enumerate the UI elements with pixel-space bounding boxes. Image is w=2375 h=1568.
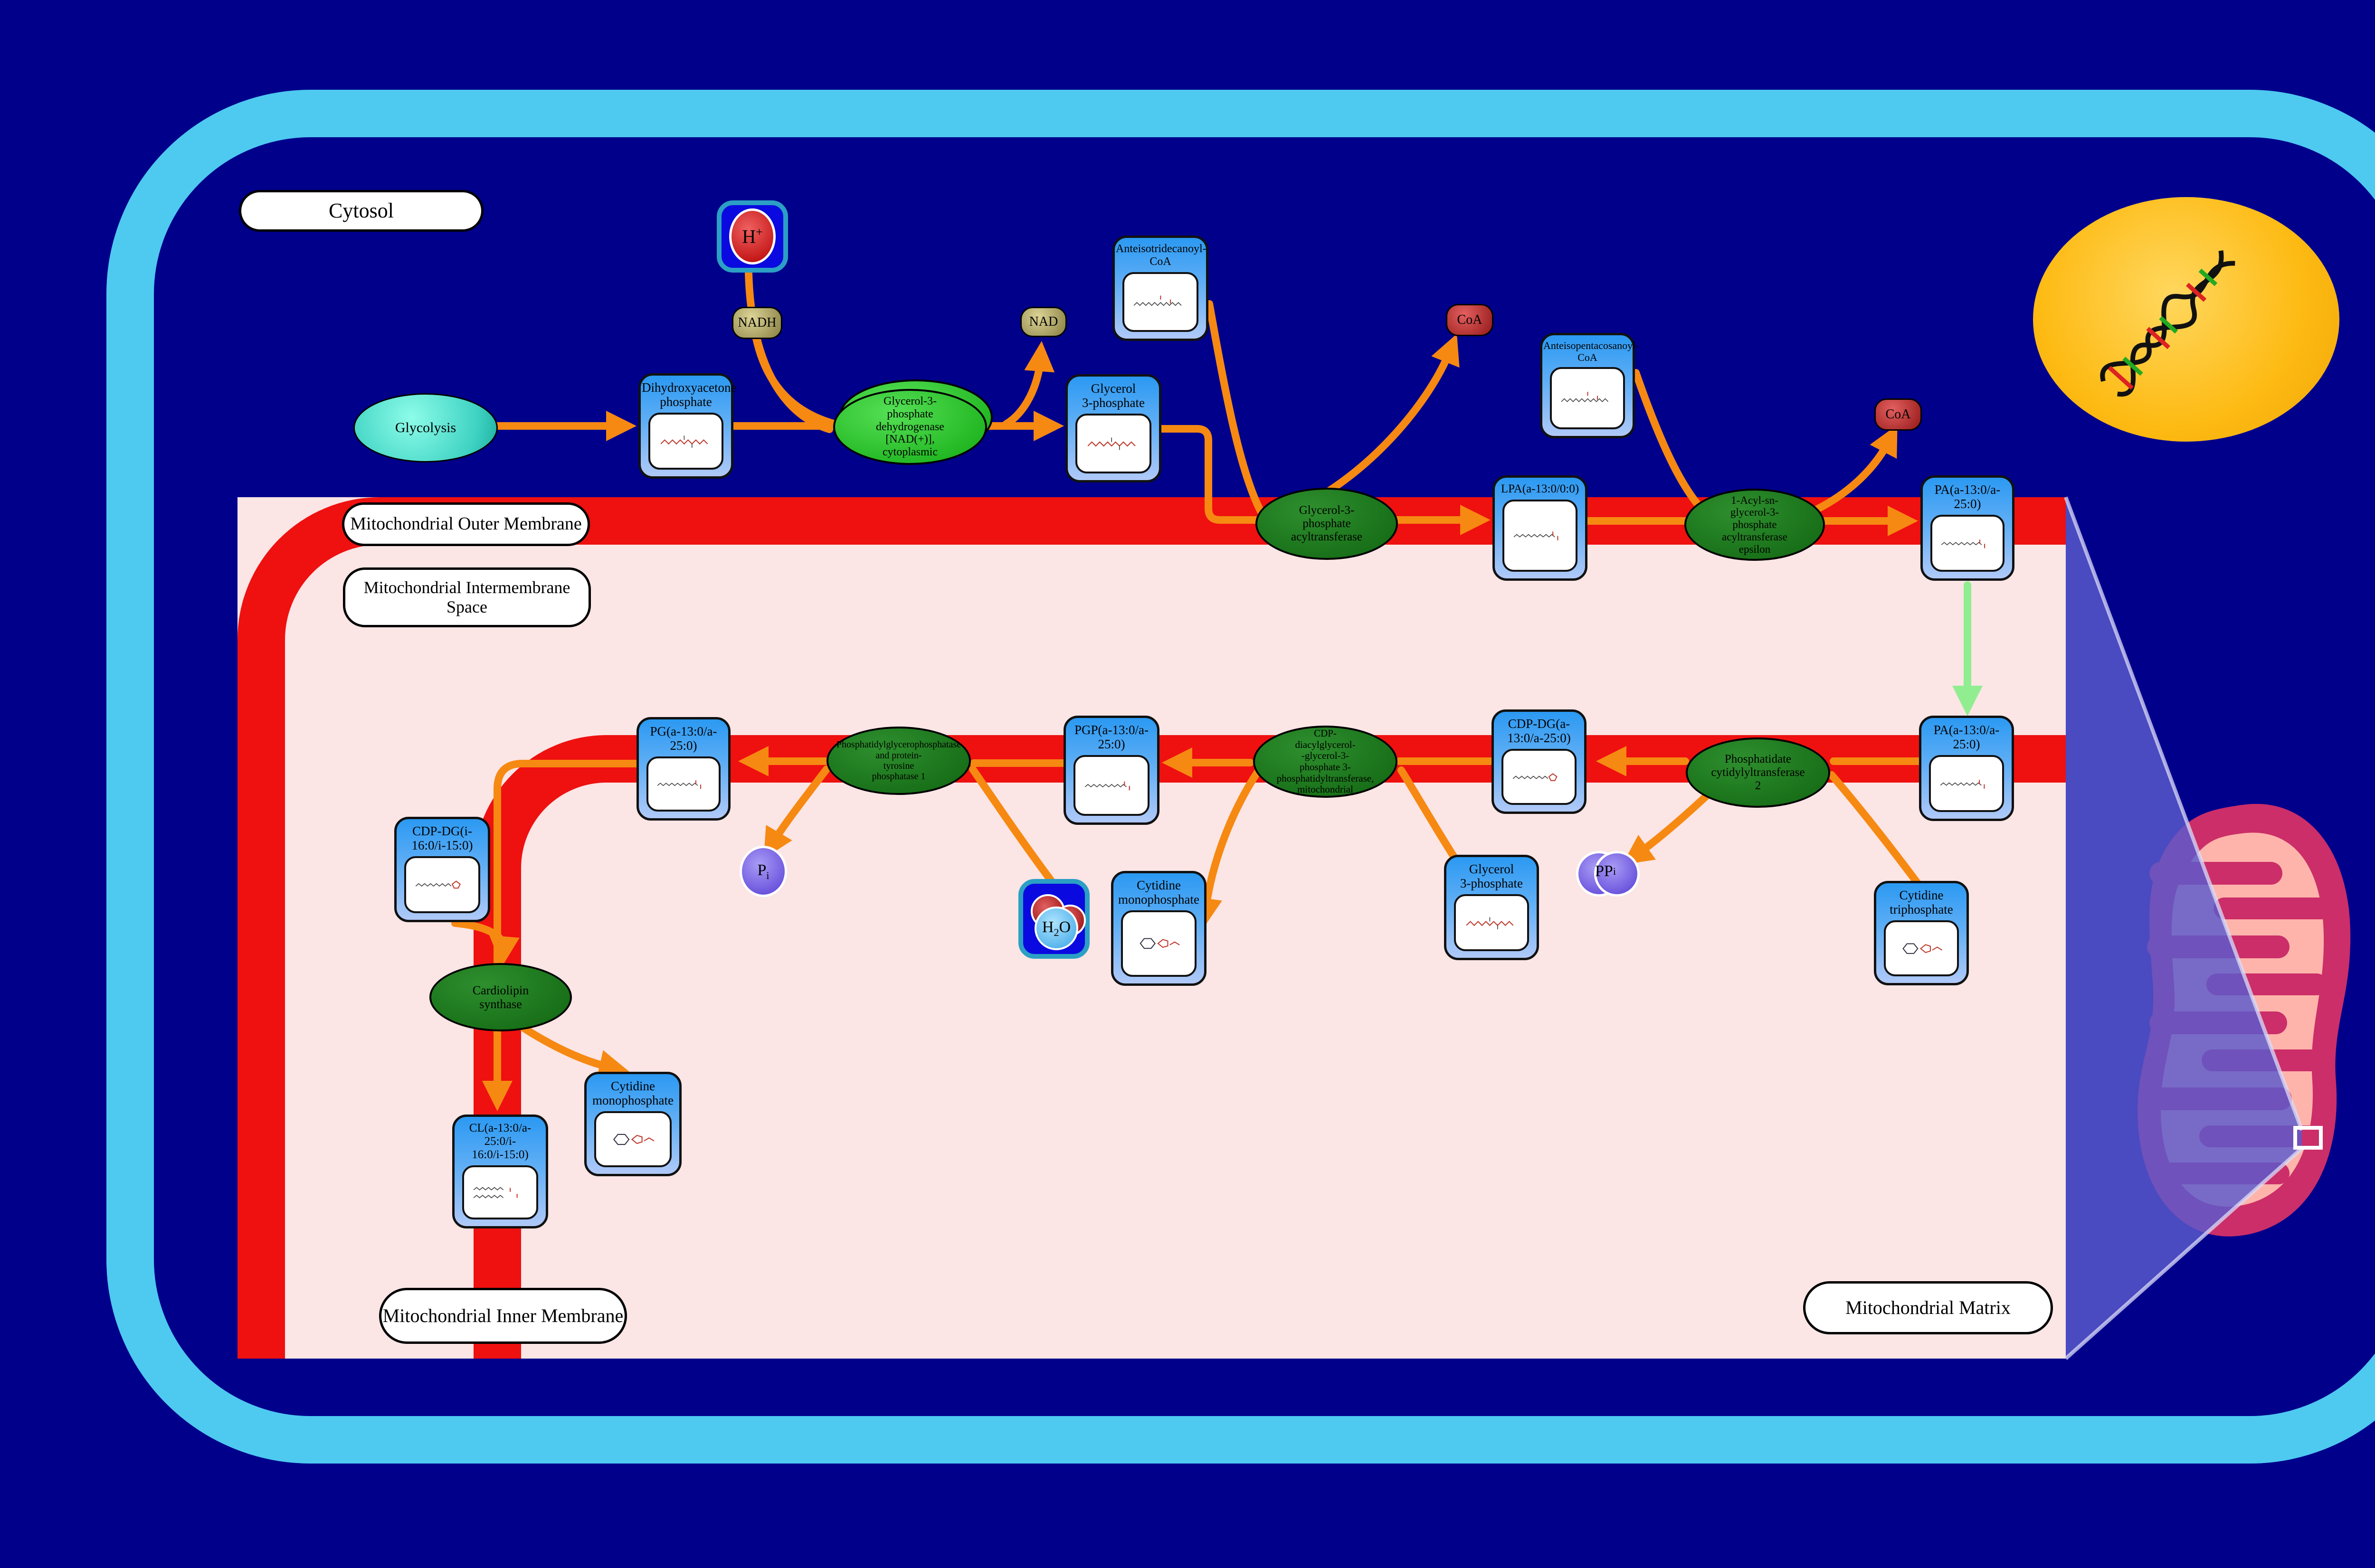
metabolite-cdp-dg-a[interactable]: CDP-DG(a- 13:0/a-25:0) <box>1491 709 1586 814</box>
pathway-canvas: Cytosol Mitochondrial Outer Membrane Mit… <box>0 0 2375 1568</box>
cofactor-coa-1[interactable]: CoA <box>1446 304 1493 336</box>
metabolite-cmp-1[interactable]: Cytidine monophosphate <box>1111 871 1206 986</box>
structure-thumbnail <box>1550 367 1625 429</box>
label-outer-membrane: Mitochondrial Outer Membrane <box>342 502 590 546</box>
water-icon[interactable]: H2O <box>1018 879 1090 959</box>
structure-thumbnail <box>1075 414 1151 473</box>
label-cytosol: Cytosol <box>239 190 484 232</box>
cofactor-ppi[interactable]: PPi <box>1576 851 1635 894</box>
metabolite-label: LPA(a-13:0/0:0) <box>1495 478 1585 499</box>
metabolite-label: Cytidine monophosphate <box>587 1074 679 1110</box>
metabolite-label: Cytidine monophosphate <box>1113 873 1204 909</box>
metabolite-cmp-2[interactable]: Cytidine monophosphate <box>584 1072 682 1176</box>
structure-thumbnail <box>1454 894 1529 951</box>
metabolite-dhap[interactable]: Dihydroxyacetone phosphate <box>638 373 733 479</box>
metabolite-label: PGP(a-13:0/a- 25:0) <box>1066 718 1157 754</box>
proton-icon[interactable]: H+ <box>717 200 788 273</box>
metabolite-label: Dihydroxyacetone phosphate <box>641 376 731 412</box>
enzyme-agpat-epsilon[interactable]: 1-Acyl-sn- glycerol-3- phosphate acyltra… <box>1684 489 1825 561</box>
ppi-label: PPi <box>1576 851 1635 892</box>
metabolite-pa-inner[interactable]: PA(a-13:0/a- 25:0) <box>1919 716 2014 821</box>
structure-thumbnail <box>1502 500 1577 572</box>
cofactor-nadh[interactable]: NADH <box>732 307 782 339</box>
enzyme-gpat[interactable]: Glycerol-3- phosphate acyltransferase <box>1255 488 1398 560</box>
pi-label: Pi <box>757 861 769 882</box>
enzyme-cardiolipin-synthase[interactable]: Cardiolipin synthase <box>429 963 572 1031</box>
enzyme-gpd-cytoplasmic[interactable]: Glycerol-3- phosphate dehydrogenase [NAD… <box>833 389 987 465</box>
metabolite-label: CDP-DG(a- 13:0/a-25:0) <box>1494 712 1584 748</box>
structure-thumbnail <box>1884 920 1959 976</box>
enzyme-pct2[interactable]: Phosphatidate cytidylyltransferase 2 <box>1686 737 1830 808</box>
metabolite-label: PA(a-13:0/a- 25:0) <box>1923 478 2012 514</box>
metabolite-label: CDP-DG(i- 16:0/i-15:0) <box>397 819 488 855</box>
enzyme-pgp-synthase[interactable]: CDP- diacylglycerol- -glycerol-3- phosph… <box>1253 726 1397 798</box>
cofactor-coa-2[interactable]: CoA <box>1874 398 1922 431</box>
structure-thumbnail <box>648 413 723 470</box>
metabolite-label: PA(a-13:0/a- 25:0) <box>1921 718 2012 754</box>
metabolite-pa-outer[interactable]: PA(a-13:0/a- 25:0) <box>1920 475 2014 581</box>
structure-thumbnail <box>404 856 480 913</box>
structure-thumbnail <box>1930 515 2004 572</box>
metabolite-cl[interactable]: CL(a-13:0/a- 25:0/i- 16:0/i-15:0) <box>452 1115 548 1228</box>
cofactor-nad[interactable]: NAD <box>1020 307 1067 337</box>
structure-thumbnail <box>1121 910 1197 977</box>
structure-thumbnail <box>462 1165 538 1219</box>
structure-thumbnail <box>594 1111 672 1167</box>
structure-thumbnail <box>646 756 721 812</box>
metabolite-lpa[interactable]: LPA(a-13:0/0:0) <box>1492 475 1587 581</box>
metabolite-label: Glycerol 3-phosphate <box>1068 377 1159 413</box>
metabolite-anteisotridecanoyl-coa[interactable]: Anteisotridecanoyl- CoA <box>1112 236 1208 341</box>
metabolite-ctp[interactable]: Cytidine triphosphate <box>1874 881 1969 985</box>
cofactor-pi[interactable]: Pi <box>740 846 787 897</box>
enzyme-pgpase[interactable]: Phosphatidylglycerophosphatase and prote… <box>826 727 971 795</box>
metabolite-label: PG(a-13:0/a- 25:0) <box>639 719 728 756</box>
metabolite-label: Glycerol 3-phosphate <box>1446 857 1537 893</box>
h2o-label: H2O <box>1035 907 1078 950</box>
metabolite-label: Anteisotridecanoyl- CoA <box>1115 238 1206 271</box>
metabolite-pg[interactable]: PG(a-13:0/a- 25:0) <box>636 717 731 821</box>
metabolite-pgp[interactable]: PGP(a-13:0/a- 25:0) <box>1064 716 1159 825</box>
metabolite-label: CL(a-13:0/a- 25:0/i- 16:0/i-15:0) <box>455 1117 546 1164</box>
structure-thumbnail <box>1073 755 1149 816</box>
metabolite-cdp-dg-i[interactable]: CDP-DG(i- 16:0/i-15:0) <box>394 817 490 922</box>
label-inner-membrane: Mitochondrial Inner Membrane <box>379 1288 627 1344</box>
label-matrix: Mitochondrial Matrix <box>1803 1281 2053 1334</box>
structure-thumbnail <box>1501 749 1577 805</box>
metabolite-label: Cytidine triphosphate <box>1876 883 1966 919</box>
node-glycolysis[interactable]: Glycolysis <box>353 393 498 463</box>
structure-thumbnail <box>1122 272 1198 332</box>
structure-thumbnail <box>1929 755 2004 812</box>
metabolite-g3p-matrix[interactable]: Glycerol 3-phosphate <box>1444 855 1539 960</box>
label-intermembrane-space: Mitochondrial Intermembrane Space <box>343 567 591 627</box>
h-plus-label: H+ <box>729 208 776 264</box>
metabolite-anteisopentacosanoyl-coa[interactable]: Anteisopentacosanoyl- CoA <box>1540 333 1635 438</box>
metabolite-g3p-cytosol[interactable]: Glycerol 3-phosphate <box>1065 374 1161 482</box>
metabolite-label: Anteisopentacosanoyl- CoA <box>1542 335 1633 366</box>
